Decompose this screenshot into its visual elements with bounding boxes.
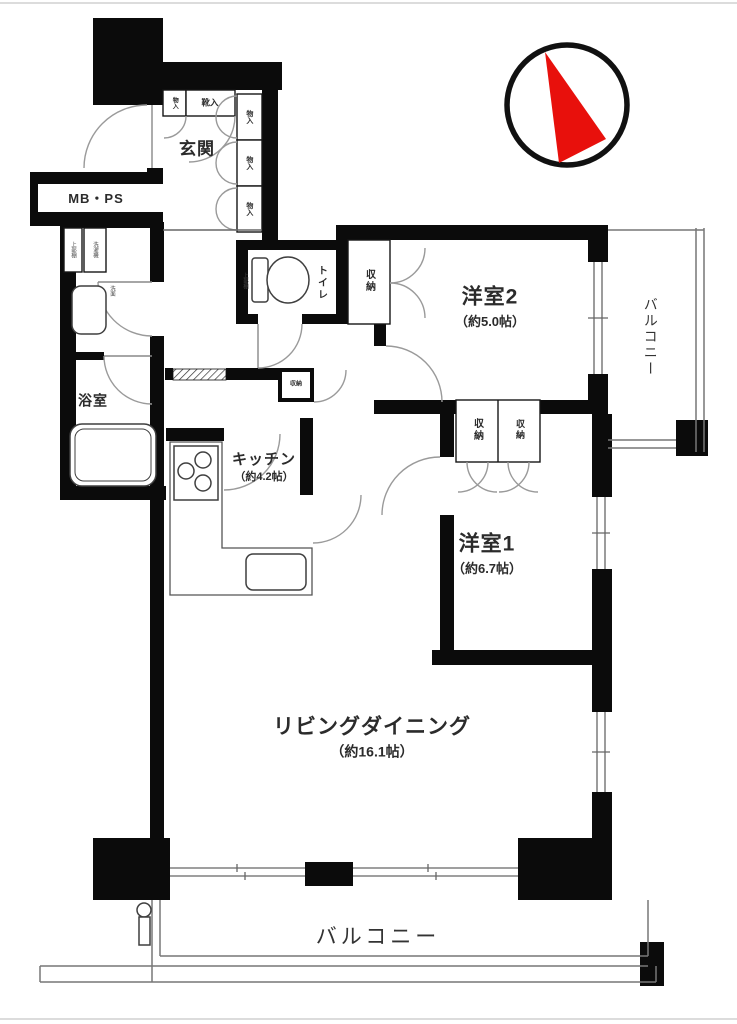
wall: [374, 400, 458, 414]
label-washer: 洗濯機: [92, 242, 98, 259]
wall: [374, 324, 386, 346]
label-wash-upper-cabinet: 上部棚: [70, 242, 76, 259]
label-toilet-shelf: 上部棚: [242, 273, 248, 290]
label-side-closet-3: 物入: [245, 202, 253, 216]
label-closet-small: 物入: [171, 97, 178, 109]
room-label-genkan: 玄関: [179, 141, 215, 160]
wall: [150, 222, 164, 282]
label-side-closet-1: 物入: [245, 110, 253, 124]
wall: [588, 240, 608, 262]
wall: [150, 336, 164, 848]
room-label-bedroom1: 洋室1: [459, 532, 516, 555]
bath-door-arc: [104, 356, 152, 404]
label-shoe-closet: 靴入: [201, 98, 218, 107]
wall: [236, 314, 258, 324]
compass-icon: [507, 45, 627, 165]
closet-arc: [216, 188, 237, 230]
closet-arc: [216, 142, 237, 184]
closet-bifold-arc: [499, 462, 529, 492]
hall-door-arc: [314, 370, 346, 402]
wall: [36, 172, 163, 184]
bathtub-inner: [75, 429, 151, 481]
wall: [440, 515, 454, 652]
closet-bifold-arc: [390, 283, 425, 318]
burner: [178, 463, 194, 479]
floor-plan: 玄関 MB・PS 浴室 トイレ 上部棚 上部棚 洗濯機 洗面 洋室2 （約5.0…: [0, 0, 737, 1024]
room-size-living: （約16.1帖）: [330, 744, 413, 759]
room-size-bedroom1: （約6.7帖）: [452, 562, 522, 576]
room-label-living: リビングダイニング: [273, 715, 471, 738]
wall: [676, 420, 708, 456]
closet-bifold-arc: [467, 462, 497, 492]
burner: [195, 452, 211, 468]
wall: [440, 414, 454, 457]
wall: [76, 352, 104, 360]
wall: [336, 225, 608, 240]
room-label-bath: 浴室: [78, 393, 108, 408]
hatched-partition: [173, 369, 226, 380]
room-label-mbps: MB・PS: [68, 192, 124, 206]
burner: [195, 475, 211, 491]
wall: [432, 650, 612, 665]
toilet-tank: [252, 258, 268, 302]
wall: [592, 792, 612, 838]
closet-arc: [164, 116, 186, 138]
bedroom1-door-arc: [382, 457, 440, 515]
wall: [163, 62, 282, 90]
closet-bifold-arc: [458, 462, 488, 492]
label-basin: 洗面: [109, 286, 115, 297]
wall: [336, 240, 348, 324]
room-label-kitchen: キッチン: [232, 452, 296, 469]
wall: [165, 368, 173, 380]
wall: [236, 240, 348, 250]
wall: [592, 414, 612, 497]
wall: [166, 428, 224, 441]
room-label-toilet: トイレ: [316, 265, 327, 301]
room-label-bedroom2: 洋室2: [462, 285, 519, 308]
bedroom2-door-arc: [386, 346, 442, 402]
corridor-door-arc: [313, 495, 361, 543]
room-size-bedroom2: （約5.0帖）: [455, 315, 525, 329]
wall: [300, 418, 313, 495]
washbasin: [72, 286, 106, 334]
label-hall-closet: 収納: [290, 382, 302, 389]
balcony-faucet-base: [139, 917, 150, 945]
closet-bifold-arc: [508, 462, 538, 492]
wall: [226, 368, 278, 380]
toilet-door-arc: [258, 324, 302, 368]
front-door-arc: [84, 105, 147, 168]
label-bedroom1-closet-b: 収納: [514, 419, 524, 441]
toilet-bowl: [267, 257, 309, 303]
label-bedroom2-closet: 収納: [364, 269, 375, 293]
wall: [588, 374, 608, 414]
closet-bifold-arc: [390, 248, 425, 283]
wall: [93, 18, 163, 105]
balcony-faucet: [137, 903, 151, 917]
wall: [592, 569, 612, 712]
wall: [262, 90, 278, 240]
wall: [93, 838, 170, 900]
wall: [640, 942, 664, 986]
room-size-kitchen: （約4.2帖）: [234, 471, 293, 483]
floor-plan-drawing: [0, 0, 737, 1024]
label-balcony-bottom: バルコニー: [316, 925, 441, 948]
kitchen-sink: [246, 554, 306, 590]
label-bedroom1-closet-a: 収納: [472, 418, 483, 442]
wall: [305, 862, 353, 886]
label-balcony-side: バルコニー: [642, 297, 657, 377]
label-side-closet-2: 物入: [245, 156, 253, 170]
wall: [30, 172, 38, 226]
wall: [518, 838, 612, 900]
